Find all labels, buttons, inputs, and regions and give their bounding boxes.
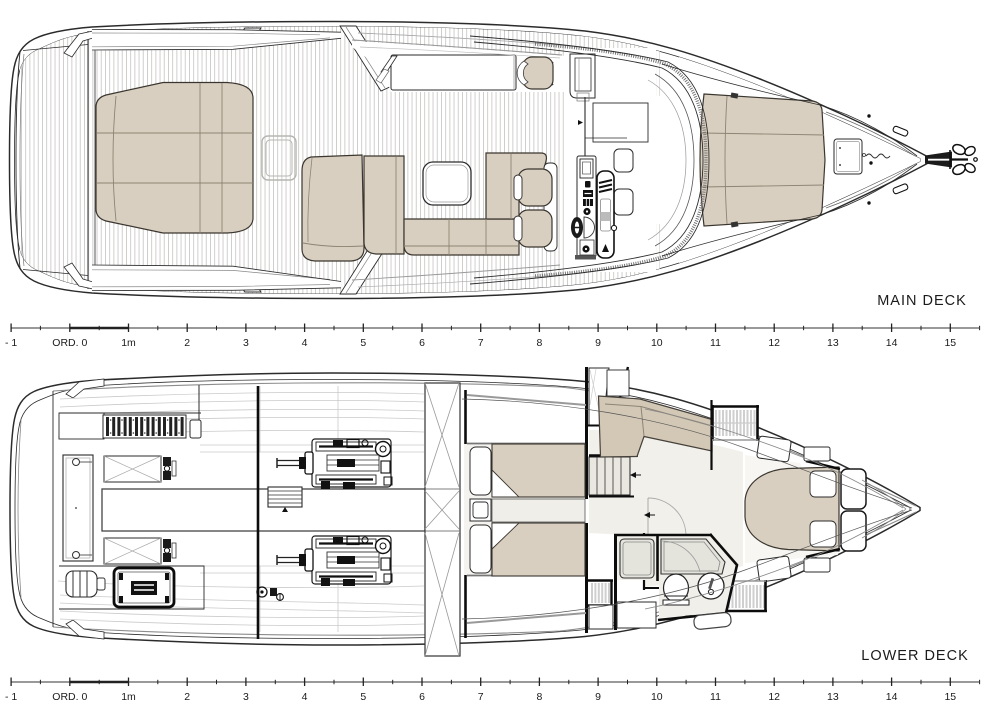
svg-text:10: 10 bbox=[651, 337, 663, 349]
svg-text:- 1: - 1 bbox=[5, 691, 17, 703]
svg-text:3: 3 bbox=[243, 337, 249, 349]
svg-text:2: 2 bbox=[184, 691, 190, 703]
svg-text:14: 14 bbox=[886, 337, 898, 349]
svg-text:15: 15 bbox=[944, 337, 956, 349]
svg-text:MAIN DECK: MAIN DECK bbox=[877, 293, 967, 309]
svg-text:ORD. 0: ORD. 0 bbox=[52, 691, 87, 703]
svg-text:5: 5 bbox=[360, 691, 366, 703]
svg-text:7: 7 bbox=[478, 337, 484, 349]
svg-text:4: 4 bbox=[302, 691, 308, 703]
svg-text:1m: 1m bbox=[121, 337, 136, 349]
svg-text:8: 8 bbox=[536, 691, 542, 703]
svg-text:9: 9 bbox=[595, 337, 601, 349]
svg-text:15: 15 bbox=[944, 691, 956, 703]
svg-text:5: 5 bbox=[360, 337, 366, 349]
svg-text:7: 7 bbox=[478, 691, 484, 703]
svg-text:1m: 1m bbox=[121, 691, 136, 703]
svg-text:10: 10 bbox=[651, 691, 663, 703]
svg-text:3: 3 bbox=[243, 691, 249, 703]
svg-text:2: 2 bbox=[184, 337, 190, 349]
svg-text:14: 14 bbox=[886, 691, 898, 703]
svg-text:- 1: - 1 bbox=[5, 337, 17, 349]
svg-text:13: 13 bbox=[827, 691, 839, 703]
svg-text:4: 4 bbox=[302, 337, 308, 349]
svg-text:8: 8 bbox=[536, 337, 542, 349]
svg-text:LOWER DECK: LOWER DECK bbox=[861, 648, 969, 664]
svg-text:9: 9 bbox=[595, 691, 601, 703]
svg-text:12: 12 bbox=[768, 337, 780, 349]
svg-text:11: 11 bbox=[710, 337, 721, 349]
svg-text:12: 12 bbox=[768, 691, 780, 703]
svg-text:ORD. 0: ORD. 0 bbox=[52, 337, 87, 349]
svg-text:13: 13 bbox=[827, 337, 839, 349]
svg-text:6: 6 bbox=[419, 337, 425, 349]
svg-text:6: 6 bbox=[419, 691, 425, 703]
svg-text:11: 11 bbox=[710, 691, 721, 703]
